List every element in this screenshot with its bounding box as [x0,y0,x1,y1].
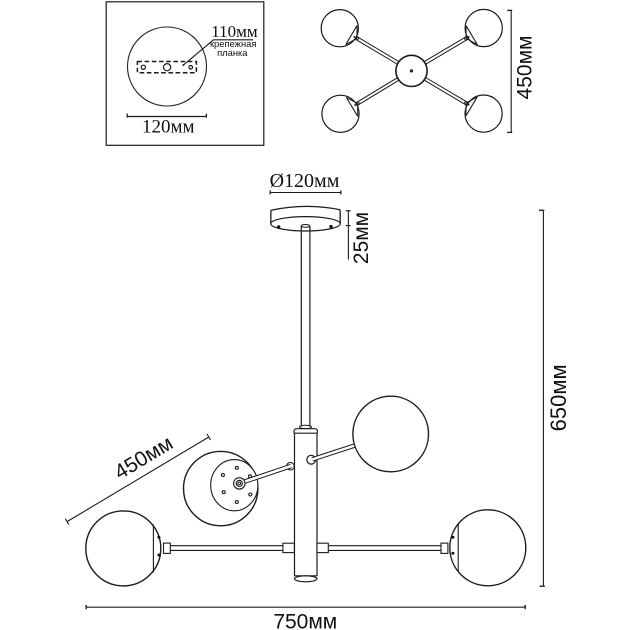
svg-text:650мм: 650мм [546,364,571,431]
svg-text:750мм: 750мм [273,610,337,630]
svg-text:25мм: 25мм [350,212,373,264]
svg-text:450мм: 450мм [514,36,537,100]
svg-text:планка: планка [217,47,248,58]
svg-text:Ø120мм: Ø120мм [270,170,340,192]
svg-text:120мм: 120мм [142,117,195,138]
